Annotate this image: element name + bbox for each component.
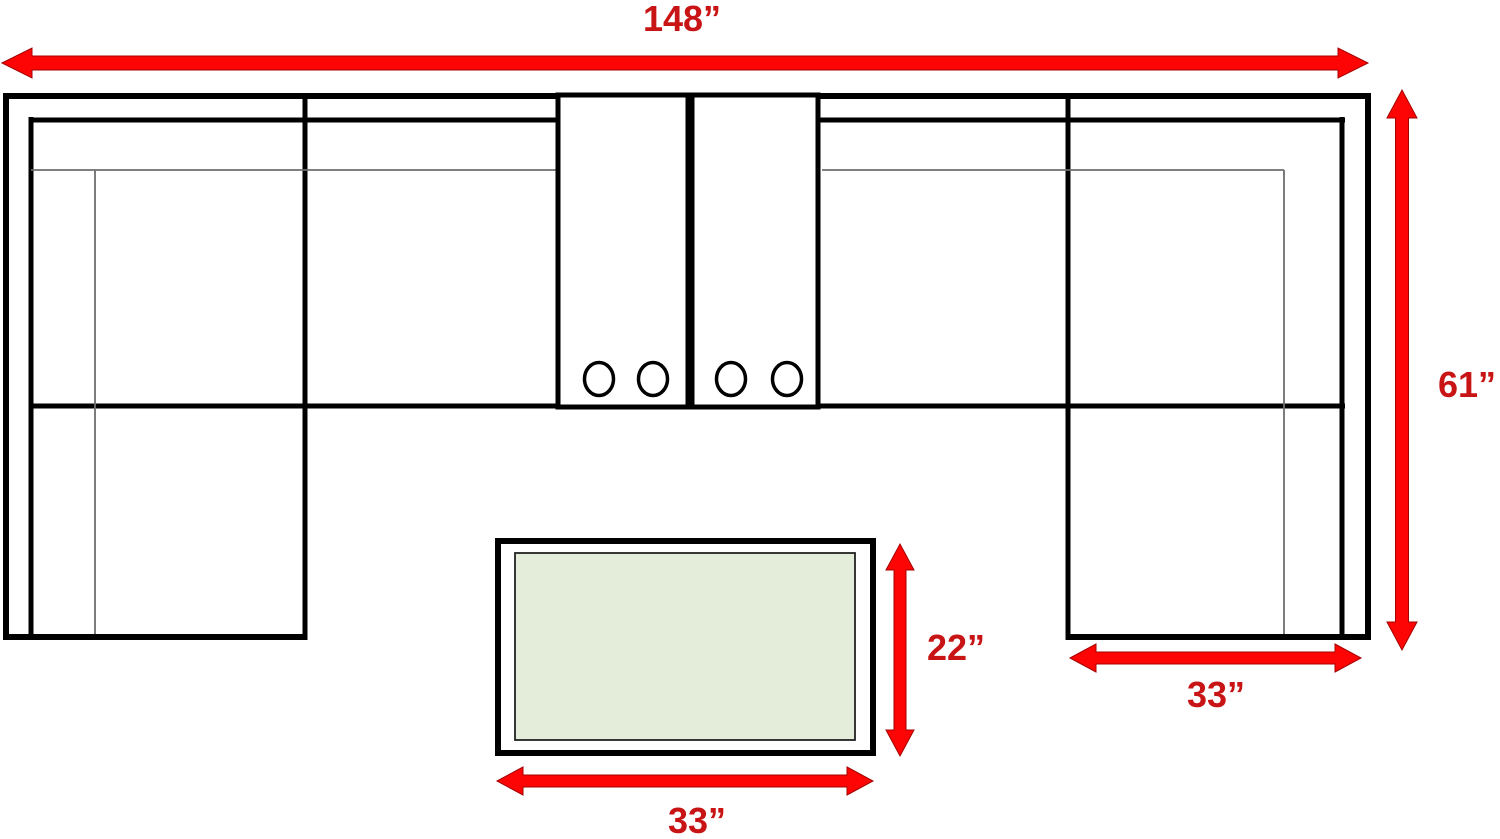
sofa-dimension-diagram: 148” 61” 22” 33” 33” (0, 0, 1500, 839)
dimension-label-overall-depth: 61” (1438, 364, 1496, 405)
console-right (692, 95, 818, 407)
diagram-canvas: 148” 61” 22” 33” 33” (0, 0, 1500, 839)
dimension-arrow-ottoman-depth (886, 544, 914, 756)
ottoman (498, 541, 873, 753)
dimension-arrow-right-chaise-width (1070, 644, 1361, 672)
cupholder-icon (773, 363, 802, 396)
dimension-arrow-overall-width (2, 48, 1368, 78)
dimension-arrow-overall-depth (1387, 90, 1417, 650)
console-section (558, 95, 818, 407)
cupholder-icon (639, 363, 668, 396)
dimension-label-overall-width: 148” (643, 0, 721, 39)
ottoman-cushion-top (515, 553, 855, 740)
cupholder-icon (717, 363, 746, 396)
dimension-label-right-chaise-width: 33” (1187, 674, 1245, 715)
dimension-arrow-ottoman-width (497, 767, 873, 795)
console-left (558, 95, 688, 407)
dimension-label-ottoman-depth: 22” (927, 627, 985, 668)
dimension-label-ottoman-width: 33” (668, 800, 726, 839)
cupholder-icon (585, 363, 614, 396)
